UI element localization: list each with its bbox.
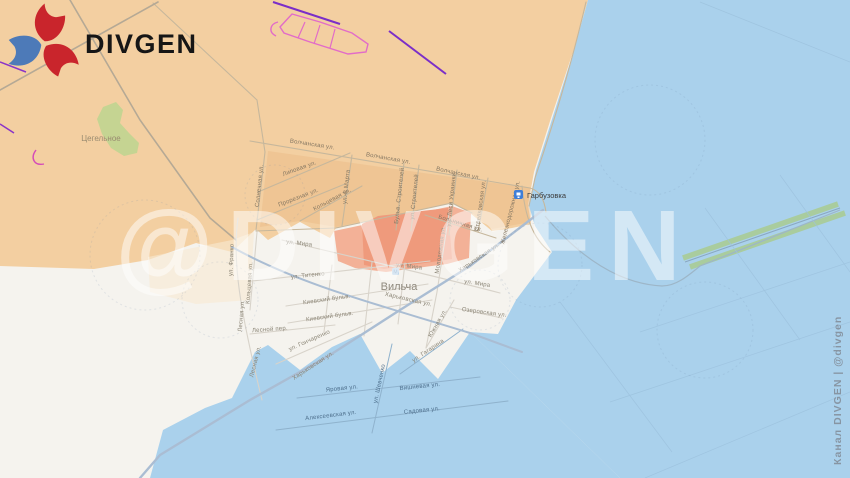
map-screenshot: Волчанская ул. Волчанская ул. Волчанская… [0, 0, 850, 478]
watermark-text: @DIVGEN [116, 190, 695, 302]
channel-credit: Канал DIVGEN | @divgen [832, 316, 844, 465]
logo-text: DIVGEN [85, 29, 198, 59]
hamlet-label: Цегельное [81, 134, 121, 143]
map-canvas[interactable]: Волчанская ул. Волчанская ул. Волчанская… [0, 0, 850, 478]
